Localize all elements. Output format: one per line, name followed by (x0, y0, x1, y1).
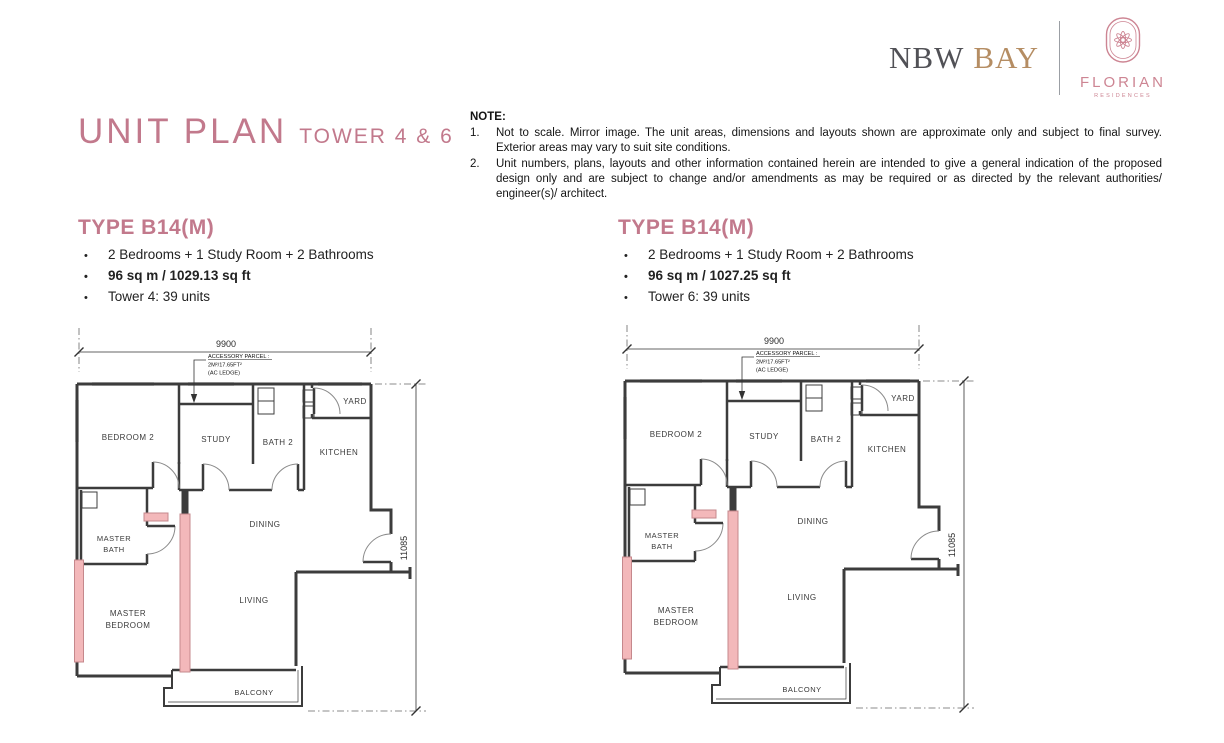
bullet-icon: • (84, 250, 108, 262)
page-title: UNIT PLANTOWER 4 & 6 (78, 112, 454, 152)
room-label-dining: DINING (250, 520, 281, 529)
callout-arrow-icon (191, 394, 197, 403)
room-label-bath2: BATH 2 (811, 435, 841, 444)
unit-type-heading: TYPE B14(M) (618, 216, 1018, 240)
accessory-parcel-line2: 2M²/17.65FT² (208, 363, 242, 369)
room-label-balcony: BALCONY (782, 685, 821, 694)
note-label: NOTE: (470, 110, 1162, 125)
bay-logo-text: BAY (973, 40, 1039, 75)
accessory-parcel-line3: (AC LEDGE) (756, 368, 788, 374)
note-block: NOTE: 1. Not to scale. Mirror image. The… (470, 110, 1162, 202)
room-label-master-bedroom-1: MASTER (658, 606, 694, 615)
unit-area: 96 sq m / 1027.25 sq ft (648, 268, 1018, 283)
title-sub: TOWER 4 & 6 (299, 125, 454, 148)
unit-feature-row: • 2 Bedrooms + 1 Study Room + 2 Bathroom… (624, 247, 1018, 262)
accessory-parcel-line2: 2M²/17.65FT² (756, 360, 790, 366)
note-item-text: Unit numbers, plans, layouts and other i… (496, 157, 1162, 203)
florian-logo: FLORIAN RESIDENCES (1080, 16, 1166, 100)
dimension-height-label: 11085 (399, 536, 409, 560)
floor-plan-tower6: 9900 11085 (606, 311, 978, 721)
callout-leader-line (742, 357, 754, 391)
floor-plan-tower4: 9900 11085 (58, 314, 430, 724)
note-item-text: Not to scale. Mirror image. The unit are… (496, 126, 1162, 156)
dimension-width-label: 9900 (764, 336, 784, 346)
outer-walls (77, 384, 410, 676)
unit-info-tower6: TYPE B14(M) • 2 Bedrooms + 1 Study Room … (618, 216, 1018, 310)
room-label-yard: YARD (343, 397, 367, 406)
accessory-parcel-line3: (AC LEDGE) (208, 371, 240, 377)
callout-leader-line (194, 360, 206, 394)
unit-feature-row: • 2 Bedrooms + 1 Study Room + 2 Bathroom… (84, 247, 478, 262)
unit-features: 2 Bedrooms + 1 Study Room + 2 Bathrooms (108, 247, 478, 262)
bullet-icon: • (624, 250, 648, 262)
room-label-master-bedroom-1: MASTER (110, 609, 146, 618)
florian-emblem-icon (1103, 16, 1143, 70)
room-label-master-bath-1: MASTER (645, 531, 679, 540)
unit-type-heading: TYPE B14(M) (78, 216, 478, 240)
logo-divider (1059, 21, 1060, 95)
room-label-dining: DINING (798, 517, 829, 526)
accessory-parcel-callout: ACCESSORY PARCEL : 2M²/17.65FT² (AC LEDG… (739, 351, 820, 400)
unit-area-row: • 96 sq m / 1029.13 sq ft (84, 268, 478, 283)
room-label-kitchen: KITCHEN (320, 448, 359, 457)
dimension-width-label: 9900 (216, 339, 236, 349)
room-label-bedroom2: BEDROOM 2 (650, 430, 703, 439)
note-item-number: 1. (470, 126, 496, 156)
room-label-master-bath-2: BATH (103, 545, 124, 554)
floor-plan-drawing: 9900 11085 (58, 314, 430, 724)
room-label-balcony: BALCONY (234, 688, 273, 697)
unit-area: 96 sq m / 1029.13 sq ft (108, 268, 478, 283)
outer-walls (625, 381, 958, 673)
accessory-parcel-callout: ACCESSORY PARCEL : 2M²/17.65FT² (AC LEDG… (191, 354, 272, 403)
note-item-number: 2. (470, 157, 496, 203)
room-label-study: STUDY (201, 435, 231, 444)
unit-info-tower4: TYPE B14(M) • 2 Bedrooms + 1 Study Room … (78, 216, 478, 310)
unit-tower-row: • Tower 6: 39 units (624, 289, 1018, 304)
bullet-icon: • (624, 271, 648, 283)
room-label-bath2: BATH 2 (263, 438, 293, 447)
room-label-study: STUDY (749, 432, 779, 441)
room-label-kitchen: KITCHEN (868, 445, 907, 454)
nbw-bay-logo: NBWBAY (889, 40, 1039, 76)
nbw-logo-text: NBW (889, 40, 964, 75)
accessory-parcel-line1: ACCESSORY PARCEL : (756, 351, 818, 357)
note-item-1: 1. Not to scale. Mirror image. The unit … (470, 126, 1162, 156)
room-labels: BEDROOM 2 STUDY BATH 2 YARD KITCHEN MAST… (97, 397, 367, 697)
room-label-living: LIVING (787, 593, 816, 602)
room-label-yard: YARD (891, 394, 915, 403)
bullet-icon: • (84, 271, 108, 283)
room-label-bedroom2: BEDROOM 2 (102, 433, 155, 442)
bullet-icon: • (84, 292, 108, 304)
unit-tower-count: Tower 4: 39 units (108, 289, 478, 304)
unit-tower-row: • Tower 4: 39 units (84, 289, 478, 304)
callout-arrow-icon (739, 391, 745, 400)
note-item-2: 2. Unit numbers, plans, layouts and othe… (470, 157, 1162, 203)
room-label-master-bedroom-2: BEDROOM (106, 621, 151, 630)
floor-plan-drawing: 9900 11085 (606, 311, 978, 721)
title-main: UNIT PLAN (78, 112, 287, 151)
room-label-master-bath-2: BATH (651, 542, 672, 551)
unit-features: 2 Bedrooms + 1 Study Room + 2 Bathrooms (648, 247, 1018, 262)
brand-header: NBWBAY FLORIAN RESIDENCES (889, 16, 1166, 100)
unit-tower-count: Tower 6: 39 units (648, 289, 1018, 304)
room-label-living: LIVING (239, 596, 268, 605)
bullet-icon: • (624, 292, 648, 304)
dimension-height-label: 11085 (947, 533, 957, 557)
residences-logo-text: RESIDENCES (1094, 94, 1152, 100)
room-label-master-bedroom-2: BEDROOM (654, 618, 699, 627)
florian-logo-text: FLORIAN (1080, 75, 1166, 90)
room-labels: BEDROOM 2 STUDY BATH 2 YARD KITCHEN MAST… (645, 394, 915, 694)
unit-area-row: • 96 sq m / 1027.25 sq ft (624, 268, 1018, 283)
accessory-parcel-line1: ACCESSORY PARCEL : (208, 354, 270, 360)
room-label-master-bath-1: MASTER (97, 534, 131, 543)
